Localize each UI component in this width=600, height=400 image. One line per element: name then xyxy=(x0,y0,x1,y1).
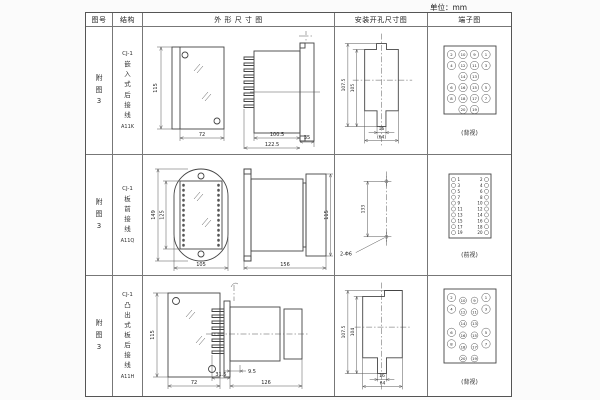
svg-text:17: 17 xyxy=(457,224,463,229)
a11q-side-view: 156 115 xyxy=(244,169,333,270)
svg-text:2: 2 xyxy=(450,295,453,300)
svg-text:14: 14 xyxy=(460,321,465,326)
svg-text:8: 8 xyxy=(450,341,453,346)
svg-text:5: 5 xyxy=(457,188,460,193)
series-row2: CJ-1 xyxy=(122,186,133,192)
fig-no-cell-row1: 附图3 xyxy=(86,27,113,155)
svg-text:12: 12 xyxy=(460,309,465,314)
col-header-fig-no: 图号 xyxy=(86,13,113,27)
svg-text:7: 7 xyxy=(484,341,487,346)
dim-a11h-cutout-w: 64 xyxy=(380,380,386,386)
svg-text:4: 4 xyxy=(479,183,482,188)
structure-cell-row1: CJ-1 嵌入式后接线 A11K xyxy=(113,27,143,155)
svg-text:9: 9 xyxy=(473,52,476,57)
terminal-cell-row1: 2109141211314136161558181772019 (背视) xyxy=(428,27,511,155)
dim-a11q-rear-h: 115 xyxy=(324,210,330,220)
dimension-table: 图号 结构 外 形 尺 寸 图 安装开孔尺寸图 端子图 附图3 CJ-1 嵌入式… xyxy=(85,12,512,397)
dim-a11k-total-len: 122.5 xyxy=(264,142,278,148)
install-drawing-a11k: 107.5 105 16 (64) xyxy=(335,29,427,153)
svg-text:12: 12 xyxy=(460,63,465,68)
series-row1: CJ-1 xyxy=(122,51,133,57)
model-code-row3: A11H xyxy=(121,374,135,380)
svg-text:7: 7 xyxy=(484,96,487,101)
fig-no-cell-row2: 附图3 xyxy=(86,155,113,276)
a11h-side-view: 9.5 31.5 126 xyxy=(206,283,308,389)
structure-cell-row3: CJ-1 凸出式板后接线 A11H xyxy=(113,276,143,396)
col-header-outline-dims: 外 形 尺 寸 图 xyxy=(143,13,335,27)
col-header-terminal-diagram: 端子图 xyxy=(428,13,511,27)
svg-text:17: 17 xyxy=(472,96,477,101)
terminal-cell-row3: 2109141211314136161558181772019 (背视) xyxy=(428,276,511,396)
svg-text:20: 20 xyxy=(460,356,465,361)
dim-a11k-body-len: 100.5 xyxy=(269,132,283,138)
svg-text:10: 10 xyxy=(460,52,465,57)
svg-text:18: 18 xyxy=(460,96,465,101)
svg-text:11: 11 xyxy=(472,63,477,68)
dim-a11h-front-h: 115 xyxy=(150,330,156,340)
dim-a11k-cutout-h: 107.5 xyxy=(341,78,347,91)
install-cell-row2: 133 2-Φ6 xyxy=(335,155,428,276)
svg-text:16: 16 xyxy=(477,218,483,223)
dim-a11k-cutout-w: (64) xyxy=(377,134,386,140)
series-row3: CJ-1 xyxy=(122,292,133,298)
svg-text:15: 15 xyxy=(472,332,477,337)
svg-text:16: 16 xyxy=(460,85,465,90)
svg-text:10: 10 xyxy=(460,298,465,303)
svg-text:4: 4 xyxy=(450,63,453,68)
terminal-view-label-row3: (背视) xyxy=(461,377,478,386)
svg-text:20: 20 xyxy=(477,230,483,235)
col-header-structure: 结构 xyxy=(113,13,143,27)
svg-text:10: 10 xyxy=(477,200,483,205)
dim-a11h-front-depth: 31.5 xyxy=(215,372,226,378)
svg-text:14: 14 xyxy=(460,74,465,79)
svg-text:19: 19 xyxy=(472,356,477,361)
a11h-front-view: 115 72 xyxy=(150,293,220,389)
dim-a11q-flange-w: 105 xyxy=(196,262,206,268)
svg-text:11: 11 xyxy=(457,206,463,211)
outline-cell-row1: 115 72 100.5 35 122 xyxy=(143,27,335,155)
svg-text:1: 1 xyxy=(484,295,487,300)
svg-text:18: 18 xyxy=(460,344,465,349)
fig-no-row3: 附图3 xyxy=(94,318,104,354)
outline-drawing-a11q: 149 125 105 156 115 xyxy=(144,157,334,273)
a11k-front-view: 115 72 xyxy=(153,47,224,141)
install-cell-row3: 107.5 104 16 64 xyxy=(335,276,428,396)
svg-text:20: 20 xyxy=(460,107,465,112)
dim-a11h-slot-w: 16 xyxy=(379,373,385,379)
terminal-view-label-row1: (背视) xyxy=(461,128,478,137)
svg-text:11: 11 xyxy=(472,309,477,314)
terminal-cell-row2: 1234567891011121314151617181920 (前视) xyxy=(428,155,511,276)
a11k-side-view: 100.5 35 122.5 xyxy=(244,31,320,149)
col-header-install-dims: 安装开孔尺寸图 xyxy=(335,13,428,27)
svg-text:14: 14 xyxy=(477,212,483,217)
dim-a11q-window-h: 125 xyxy=(159,210,165,220)
dim-a11k-front-w: 72 xyxy=(198,132,204,138)
svg-text:4: 4 xyxy=(450,306,453,311)
dim-a11h-pin-depth: 9.5 xyxy=(248,369,256,375)
svg-text:7: 7 xyxy=(457,194,460,199)
structure-text-row1: 嵌入式后接线 xyxy=(123,59,132,119)
svg-text:9: 9 xyxy=(473,298,476,303)
dim-a11q-flange-h: 149 xyxy=(151,210,157,220)
dim-a11h-cutout-h: 107.5 xyxy=(341,326,347,339)
model-code-row1: A11K xyxy=(121,124,134,130)
svg-text:19: 19 xyxy=(457,230,463,235)
svg-text:13: 13 xyxy=(472,74,477,79)
svg-text:3: 3 xyxy=(484,63,487,68)
dim-a11k-slot-w: 16 xyxy=(379,126,385,132)
svg-text:15: 15 xyxy=(457,218,463,223)
dim-a11h-cutout-h2: 104 xyxy=(350,328,356,337)
svg-text:13: 13 xyxy=(472,321,477,326)
dim-a11k-front-h: 115 xyxy=(153,83,159,93)
install-drawing-a11h: 107.5 104 16 64 xyxy=(335,276,427,396)
terminal-diagram-a11k: 2109141211314136161558181772019 xyxy=(440,44,500,124)
dim-a11h-front-w: 72 xyxy=(190,380,196,386)
svg-text:6: 6 xyxy=(450,85,453,90)
svg-text:19: 19 xyxy=(472,107,477,112)
dim-a11h-body-len: 126 xyxy=(261,380,271,386)
install-drawing-a11q: 133 2-Φ6 xyxy=(335,157,427,273)
svg-text:16: 16 xyxy=(460,332,465,337)
svg-text:5: 5 xyxy=(484,85,487,90)
svg-text:2: 2 xyxy=(479,177,482,182)
terminal-diagram-a11q: 1234567891011121314151617181920 xyxy=(443,172,497,246)
structure-text-row2: 板前接线 xyxy=(123,194,132,234)
fig-no-row2: 附图3 xyxy=(94,197,104,233)
structure-cell-row2: CJ-1 板前接线 A11Q xyxy=(113,155,143,276)
svg-text:9: 9 xyxy=(457,200,460,205)
svg-text:5: 5 xyxy=(484,329,487,334)
fig-no-cell-row3: 附图3 xyxy=(86,276,113,396)
fig-no-row1: 附图3 xyxy=(94,73,104,109)
svg-text:17: 17 xyxy=(472,344,477,349)
svg-text:15: 15 xyxy=(472,85,477,90)
terminal-diagram-a11h: 2109141211314136161558181772019 xyxy=(440,287,500,373)
svg-text:3: 3 xyxy=(484,306,487,311)
dim-a11k-cutout-h2: 105 xyxy=(350,83,356,92)
structure-text-row3: 凸出式板后接线 xyxy=(123,300,132,370)
outline-cell-row2: 149 125 105 156 115 xyxy=(143,155,335,276)
svg-text:12: 12 xyxy=(477,206,483,211)
svg-text:2: 2 xyxy=(450,52,453,57)
outline-drawing-a11h: 115 72 9.5 31.5 126 xyxy=(146,277,332,395)
dim-a11q-hole-dist: 133 xyxy=(361,205,367,214)
svg-text:6: 6 xyxy=(479,188,482,193)
svg-text:1: 1 xyxy=(484,52,487,57)
install-cell-row1: 107.5 105 16 (64) xyxy=(335,27,428,155)
outline-cell-row3: 115 72 9.5 31.5 126 xyxy=(143,276,335,396)
svg-text:13: 13 xyxy=(457,212,463,217)
svg-text:1: 1 xyxy=(457,177,460,182)
terminal-view-label-row2: (前视) xyxy=(461,250,478,259)
svg-text:6: 6 xyxy=(450,329,453,334)
svg-text:18: 18 xyxy=(477,224,483,229)
svg-text:8: 8 xyxy=(450,96,453,101)
a11q-front-view: 149 125 105 xyxy=(151,169,228,271)
dim-a11q-depth: 156 xyxy=(280,262,290,268)
outline-drawing-a11k: 115 72 100.5 35 122 xyxy=(146,29,332,153)
dim-a11q-holes: 2-Φ6 xyxy=(340,252,352,258)
model-code-row2: A11Q xyxy=(121,238,135,244)
dim-a11k-flange: 35 xyxy=(303,135,309,141)
svg-text:8: 8 xyxy=(479,194,482,199)
svg-text:3: 3 xyxy=(457,183,460,188)
